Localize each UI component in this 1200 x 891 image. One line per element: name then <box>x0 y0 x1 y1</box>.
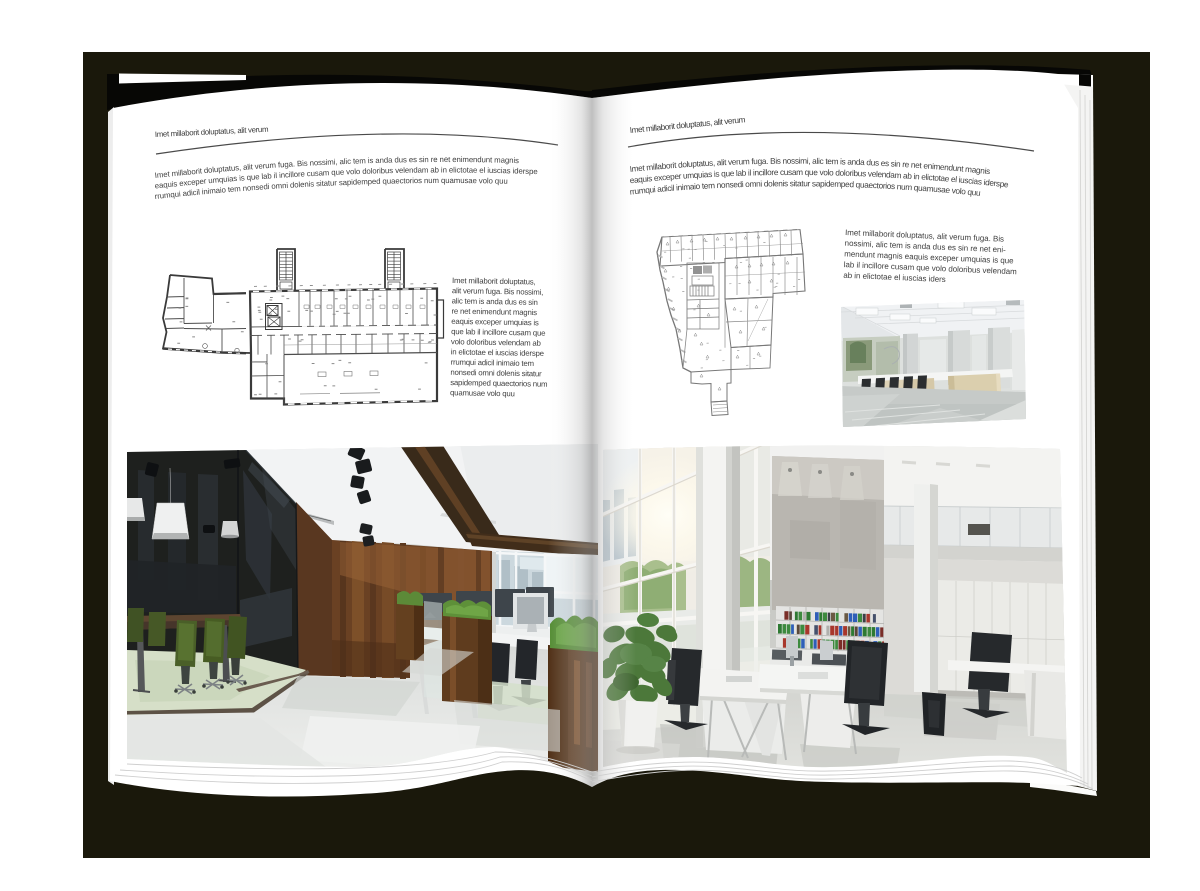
svg-text:rrumqui adicil inimaio tem: rrumqui adicil inimaio tem <box>451 358 534 368</box>
svg-text:in elictotae el iuscias idersp: in elictotae el iuscias iderspe <box>451 347 544 358</box>
svg-text:nonsedi omni dolenis sitatur: nonsedi omni dolenis sitatur <box>450 368 542 379</box>
svg-text:quamusae volo quu: quamusae volo quu <box>450 388 515 398</box>
svg-text:que lab il incillore cusam que: que lab il incillore cusam que <box>451 327 545 338</box>
svg-text:Imet millaborit doluptatus,: Imet millaborit doluptatus, <box>452 276 536 286</box>
svg-text:alic tem is anda dus es sin: alic tem is anda dus es sin <box>452 296 538 307</box>
svg-text:alit verum fuga. Bis nossimi,: alit verum fuga. Bis nossimi, <box>452 286 543 297</box>
svg-text:sapidemped quaectorios num: sapidemped quaectorios num <box>450 378 547 389</box>
svg-text:re net enimendunt magnis: re net enimendunt magnis <box>451 307 537 317</box>
svg-text:volo doloribus velendam ab: volo doloribus velendam ab <box>451 337 542 348</box>
svg-text:eaquis exceper umquias is: eaquis exceper umquias is <box>451 317 539 328</box>
